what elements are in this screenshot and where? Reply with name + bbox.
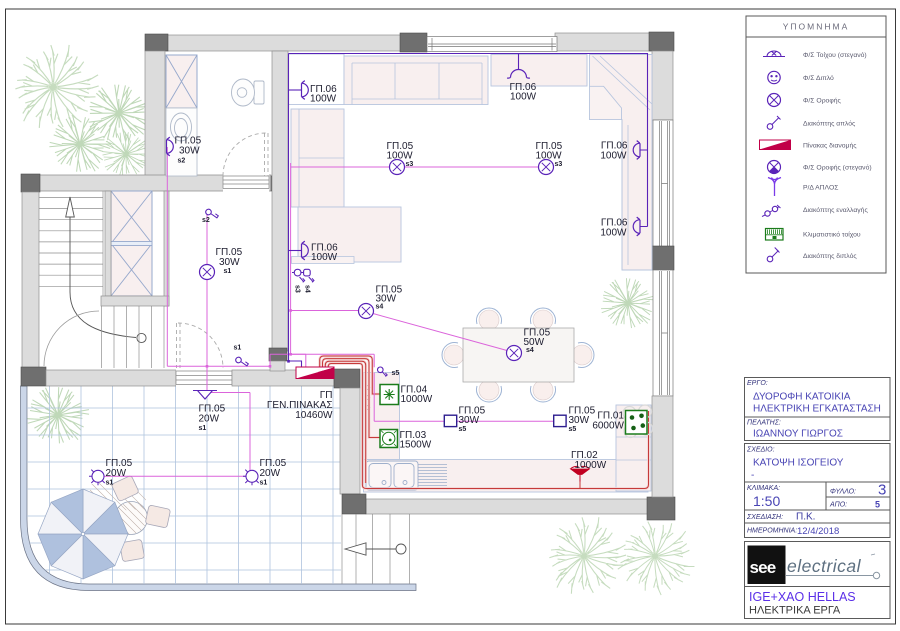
svg-text:s3: s3 [555,161,563,168]
svg-text:30W: 30W [219,257,240,268]
svg-text:3: 3 [878,482,886,499]
svg-text:s4: s4 [526,347,534,354]
svg-text:s1: s1 [199,425,207,432]
svg-text:20W: 20W [106,468,127,479]
svg-text:100W: 100W [311,252,338,263]
svg-text:s1: s1 [234,345,242,352]
svg-text:ΗΜΕΡΟΜΗΝΙΑ:: ΗΜΕΡΟΜΗΝΙΑ: [747,528,797,535]
svg-text:Πίνακας διανομής: Πίνακας διανομής [803,142,857,150]
svg-text:s1: s1 [224,268,232,275]
svg-text:1000W: 1000W [575,460,607,471]
svg-text:electrical: electrical [787,556,862,576]
svg-text:100W: 100W [387,151,414,162]
svg-text:ΠΕΛΑΤΗΣ:: ΠΕΛΑΤΗΣ: [747,420,781,427]
svg-text:100W: 100W [536,151,563,162]
svg-text:1500W: 1500W [400,440,432,451]
svg-text:Ρ/Δ ΑΠΛΟΣ: Ρ/Δ ΑΠΛΟΣ [803,185,838,192]
svg-text:s3: s3 [294,285,301,293]
svg-text:100W: 100W [310,94,337,105]
svg-text:1000W: 1000W [401,394,433,405]
svg-text:ΕΡΓΟ:: ΕΡΓΟ: [747,380,768,387]
svg-text:ΙΩΑΝΝΟΥ ΓΙΩΡΓΟΣ: ΙΩΑΝΝΟΥ ΓΙΩΡΓΟΣ [753,429,843,440]
svg-text:ΗΛΕΚΤΡΙΚΑ ΕΡΓΑ: ΗΛΕΚΤΡΙΚΑ ΕΡΓΑ [749,605,841,617]
svg-text:30W: 30W [459,415,480,426]
svg-text:s5: s5 [569,426,577,433]
svg-text:Κλιματιστικό τοίχου: Κλιματιστικό τοίχου [803,231,861,239]
svg-text:20W: 20W [260,468,281,479]
svg-text:ΚΛΙΜΑΚΑ:: ΚΛΙΜΑΚΑ: [747,485,780,492]
svg-text:s2: s2 [202,217,210,224]
svg-text:Διακόπτης απλός: Διακόπτης απλός [803,120,856,128]
svg-text:100W: 100W [600,228,627,239]
svg-text:ΗΛΕΚΤΡΙΚΗ ΕΓΚΑΤΑΣΤΑΣΗ: ΗΛΕΚΤΡΙΚΗ ΕΓΚΑΤΑΣΤΑΣΗ [753,404,881,415]
svg-text:ΥΠΟΜΝΗΜΑ: ΥΠΟΜΝΗΜΑ [783,22,850,32]
svg-text:ΣΧΕΔΙΑΣΗ:: ΣΧΕΔΙΑΣΗ: [746,514,783,521]
svg-text:12/4/2018: 12/4/2018 [797,526,839,537]
svg-text:s4: s4 [304,285,311,293]
svg-text:ΚΑΤΟΨΗ ΙΣΟΓΕΙΟΥ: ΚΑΤΟΨΗ ΙΣΟΓΕΙΟΥ [753,458,844,469]
svg-text:ΦΥΛΛΟ:: ΦΥΛΛΟ: [830,489,856,496]
svg-text:ΣΧΕΔΙΟ:: ΣΧΕΔΙΟ: [746,447,775,454]
svg-text:s5: s5 [459,426,467,433]
svg-text:s1: s1 [106,480,114,487]
svg-text:Φ/Σ Οροφής: Φ/Σ Οροφής [803,98,842,105]
svg-text:s1: s1 [260,480,268,487]
svg-text:s5: s5 [392,370,400,377]
svg-text:1:50: 1:50 [753,493,780,509]
svg-text:Φ/Σ Διπλό: Φ/Σ Διπλό [803,74,834,82]
svg-text:10460W: 10460W [295,410,333,421]
svg-text:20W: 20W [199,414,220,425]
svg-text:-: - [751,470,754,481]
svg-text:ΑΠΟ:: ΑΠΟ: [829,502,847,509]
svg-text:6000W: 6000W [592,421,624,432]
svg-text:Διακόπτης εναλλαγής: Διακόπτης εναλλαγής [803,206,868,214]
svg-text:100W: 100W [600,151,627,162]
svg-text:Διακόπτης διπλός: Διακόπτης διπλός [803,252,857,260]
svg-text:30W: 30W [179,146,200,157]
svg-text:s2: s2 [178,158,186,165]
svg-text:Φ/Σ Οροφής (στεγανό): Φ/Σ Οροφής (στεγανό) [803,164,872,172]
svg-text:Π.Κ.: Π.Κ. [796,512,815,523]
svg-text:30W: 30W [569,415,590,426]
svg-text:ΔΥΟΡΟΦΗ ΚΑΤΟΙΚΙΑ: ΔΥΟΡΟΦΗ ΚΑΤΟΙΚΙΑ [753,392,851,403]
svg-text:Φ/Σ Τοίχου (στεγανό): Φ/Σ Τοίχου (στεγανό) [803,51,867,59]
svg-text:5: 5 [875,500,880,510]
svg-text:IGE+XAO HELLAS: IGE+XAO HELLAS [749,590,856,604]
svg-text:see: see [750,558,776,577]
svg-text:s3: s3 [406,161,414,168]
svg-text:100W: 100W [510,92,537,103]
svg-text:s4: s4 [376,304,384,311]
